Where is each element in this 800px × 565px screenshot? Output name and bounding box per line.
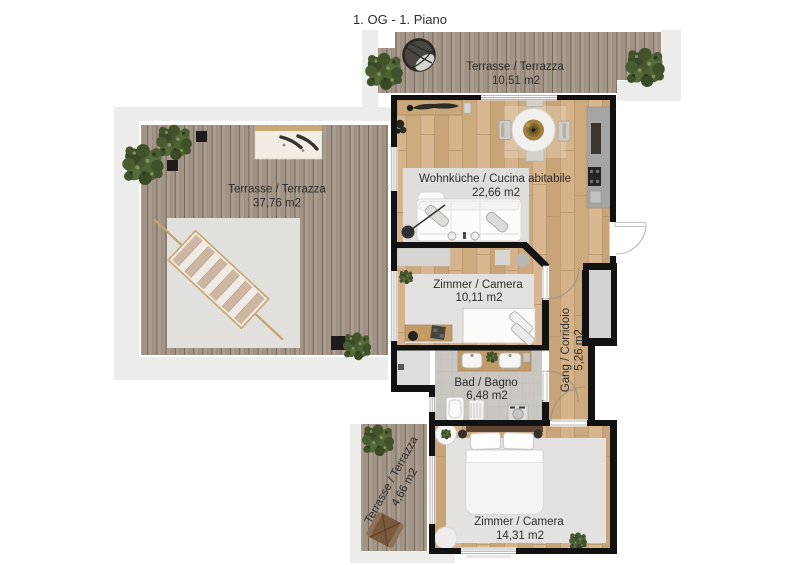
- svg-text:Terrasse / Terrazza: Terrasse / Terrazza: [228, 184, 326, 196]
- svg-text:10,51 m2: 10,51 m2: [492, 75, 540, 87]
- svg-text:6,48 m2: 6,48 m2: [466, 390, 508, 402]
- svg-text:22,66 m2: 22,66 m2: [472, 187, 520, 199]
- svg-text:1. OG - 1. Piano: 1. OG - 1. Piano: [353, 12, 447, 27]
- svg-text:Wohnküche / Cucina abitabile: Wohnküche / Cucina abitabile: [419, 173, 571, 185]
- svg-text:Zimmer / Camera: Zimmer / Camera: [474, 516, 564, 528]
- svg-text:Terrasse / Terrazza: Terrasse / Terrazza: [466, 61, 564, 73]
- svg-text:5,26 m2: 5,26 m2: [574, 329, 586, 371]
- svg-text:14,31 m2: 14,31 m2: [496, 530, 544, 542]
- svg-text:Zimmer / Camera: Zimmer / Camera: [433, 279, 523, 291]
- svg-text:Bad / Bagno: Bad / Bagno: [454, 377, 517, 389]
- svg-text:10,11 m2: 10,11 m2: [455, 292, 502, 304]
- svg-text:Gang / Corridoio: Gang / Corridoio: [560, 308, 572, 392]
- svg-text:37,76 m2: 37,76 m2: [253, 198, 301, 210]
